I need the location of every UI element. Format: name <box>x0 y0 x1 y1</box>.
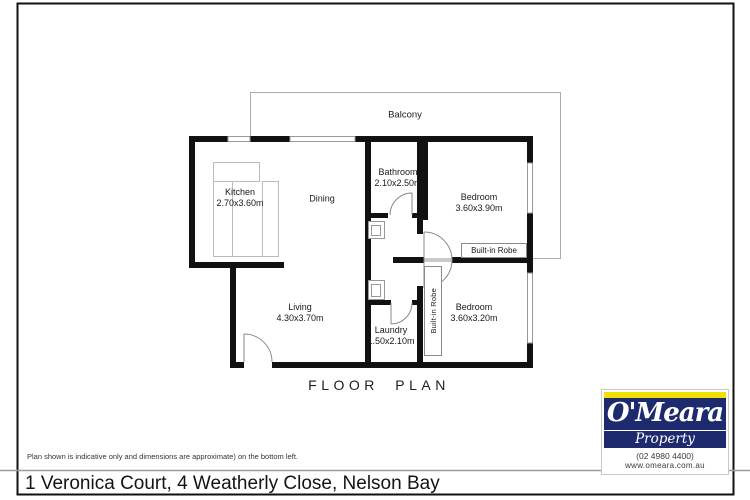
laundry-name: Laundry <box>367 325 414 336</box>
living-label: Living 4.30x3.70m <box>276 302 323 324</box>
agency-logo: O'Meara Property (02 4980 4400) www.omea… <box>601 389 729 475</box>
agency-phone: (02 4980 4400) <box>604 451 726 461</box>
laundry-dims: 1.50x2.10m <box>367 336 414 347</box>
agency-division: Property <box>604 431 726 448</box>
built-in-robe-box-bedroom2: Built-in Robe <box>424 266 442 356</box>
bedroom1-label: Bedroom 3.60x3.90m <box>455 192 502 214</box>
door-threshold <box>424 258 452 262</box>
balcony-label: Balcony <box>388 110 422 121</box>
bedroom2-label: Bedroom 3.60x3.20m <box>450 302 497 324</box>
bathroom-label: Bathroom 2.10x2.50m <box>374 167 421 189</box>
robe1-label: Built-in Robe <box>471 246 517 255</box>
floor-plan-title: FLOOR PLAN <box>308 377 450 393</box>
floorplan-page: Balcony Kitchen 2.70x3.60m Dining Bathro… <box>0 0 750 500</box>
living-name: Living <box>276 302 323 313</box>
bathroom-name: Bathroom <box>374 167 421 178</box>
address-title: 1 Veronica Court, 4 Weatherly Close, Nel… <box>25 473 440 495</box>
kitchen-label: Kitchen 2.70x3.60m <box>216 187 263 209</box>
laundry-label: Laundry 1.50x2.10m <box>367 325 414 347</box>
agency-website: www.omeara.com.au <box>604 461 726 471</box>
bedroom2-dims: 3.60x3.20m <box>450 313 497 324</box>
disclaimer-text: Plan shown is indicative only and dimens… <box>27 452 298 461</box>
living-dims: 4.30x3.70m <box>276 313 323 324</box>
kitchen-name: Kitchen <box>216 187 263 198</box>
dining-name: Dining <box>309 194 335 205</box>
bedroom1-name: Bedroom <box>455 192 502 203</box>
bathroom-dims: 2.10x2.50m <box>374 178 421 189</box>
built-in-robe-box-bedroom1: Built-in Robe <box>461 243 527 258</box>
robe2-label: Built-in Robe <box>429 288 438 334</box>
dining-label: Dining <box>309 194 335 205</box>
kitchen-dims: 2.70x3.60m <box>216 198 263 209</box>
bedroom1-dims: 3.60x3.90m <box>455 203 502 214</box>
logo-navy-block: O'Meara Property <box>604 398 726 448</box>
agency-name: O'Meara <box>604 398 726 431</box>
bedroom2-name: Bedroom <box>450 302 497 313</box>
